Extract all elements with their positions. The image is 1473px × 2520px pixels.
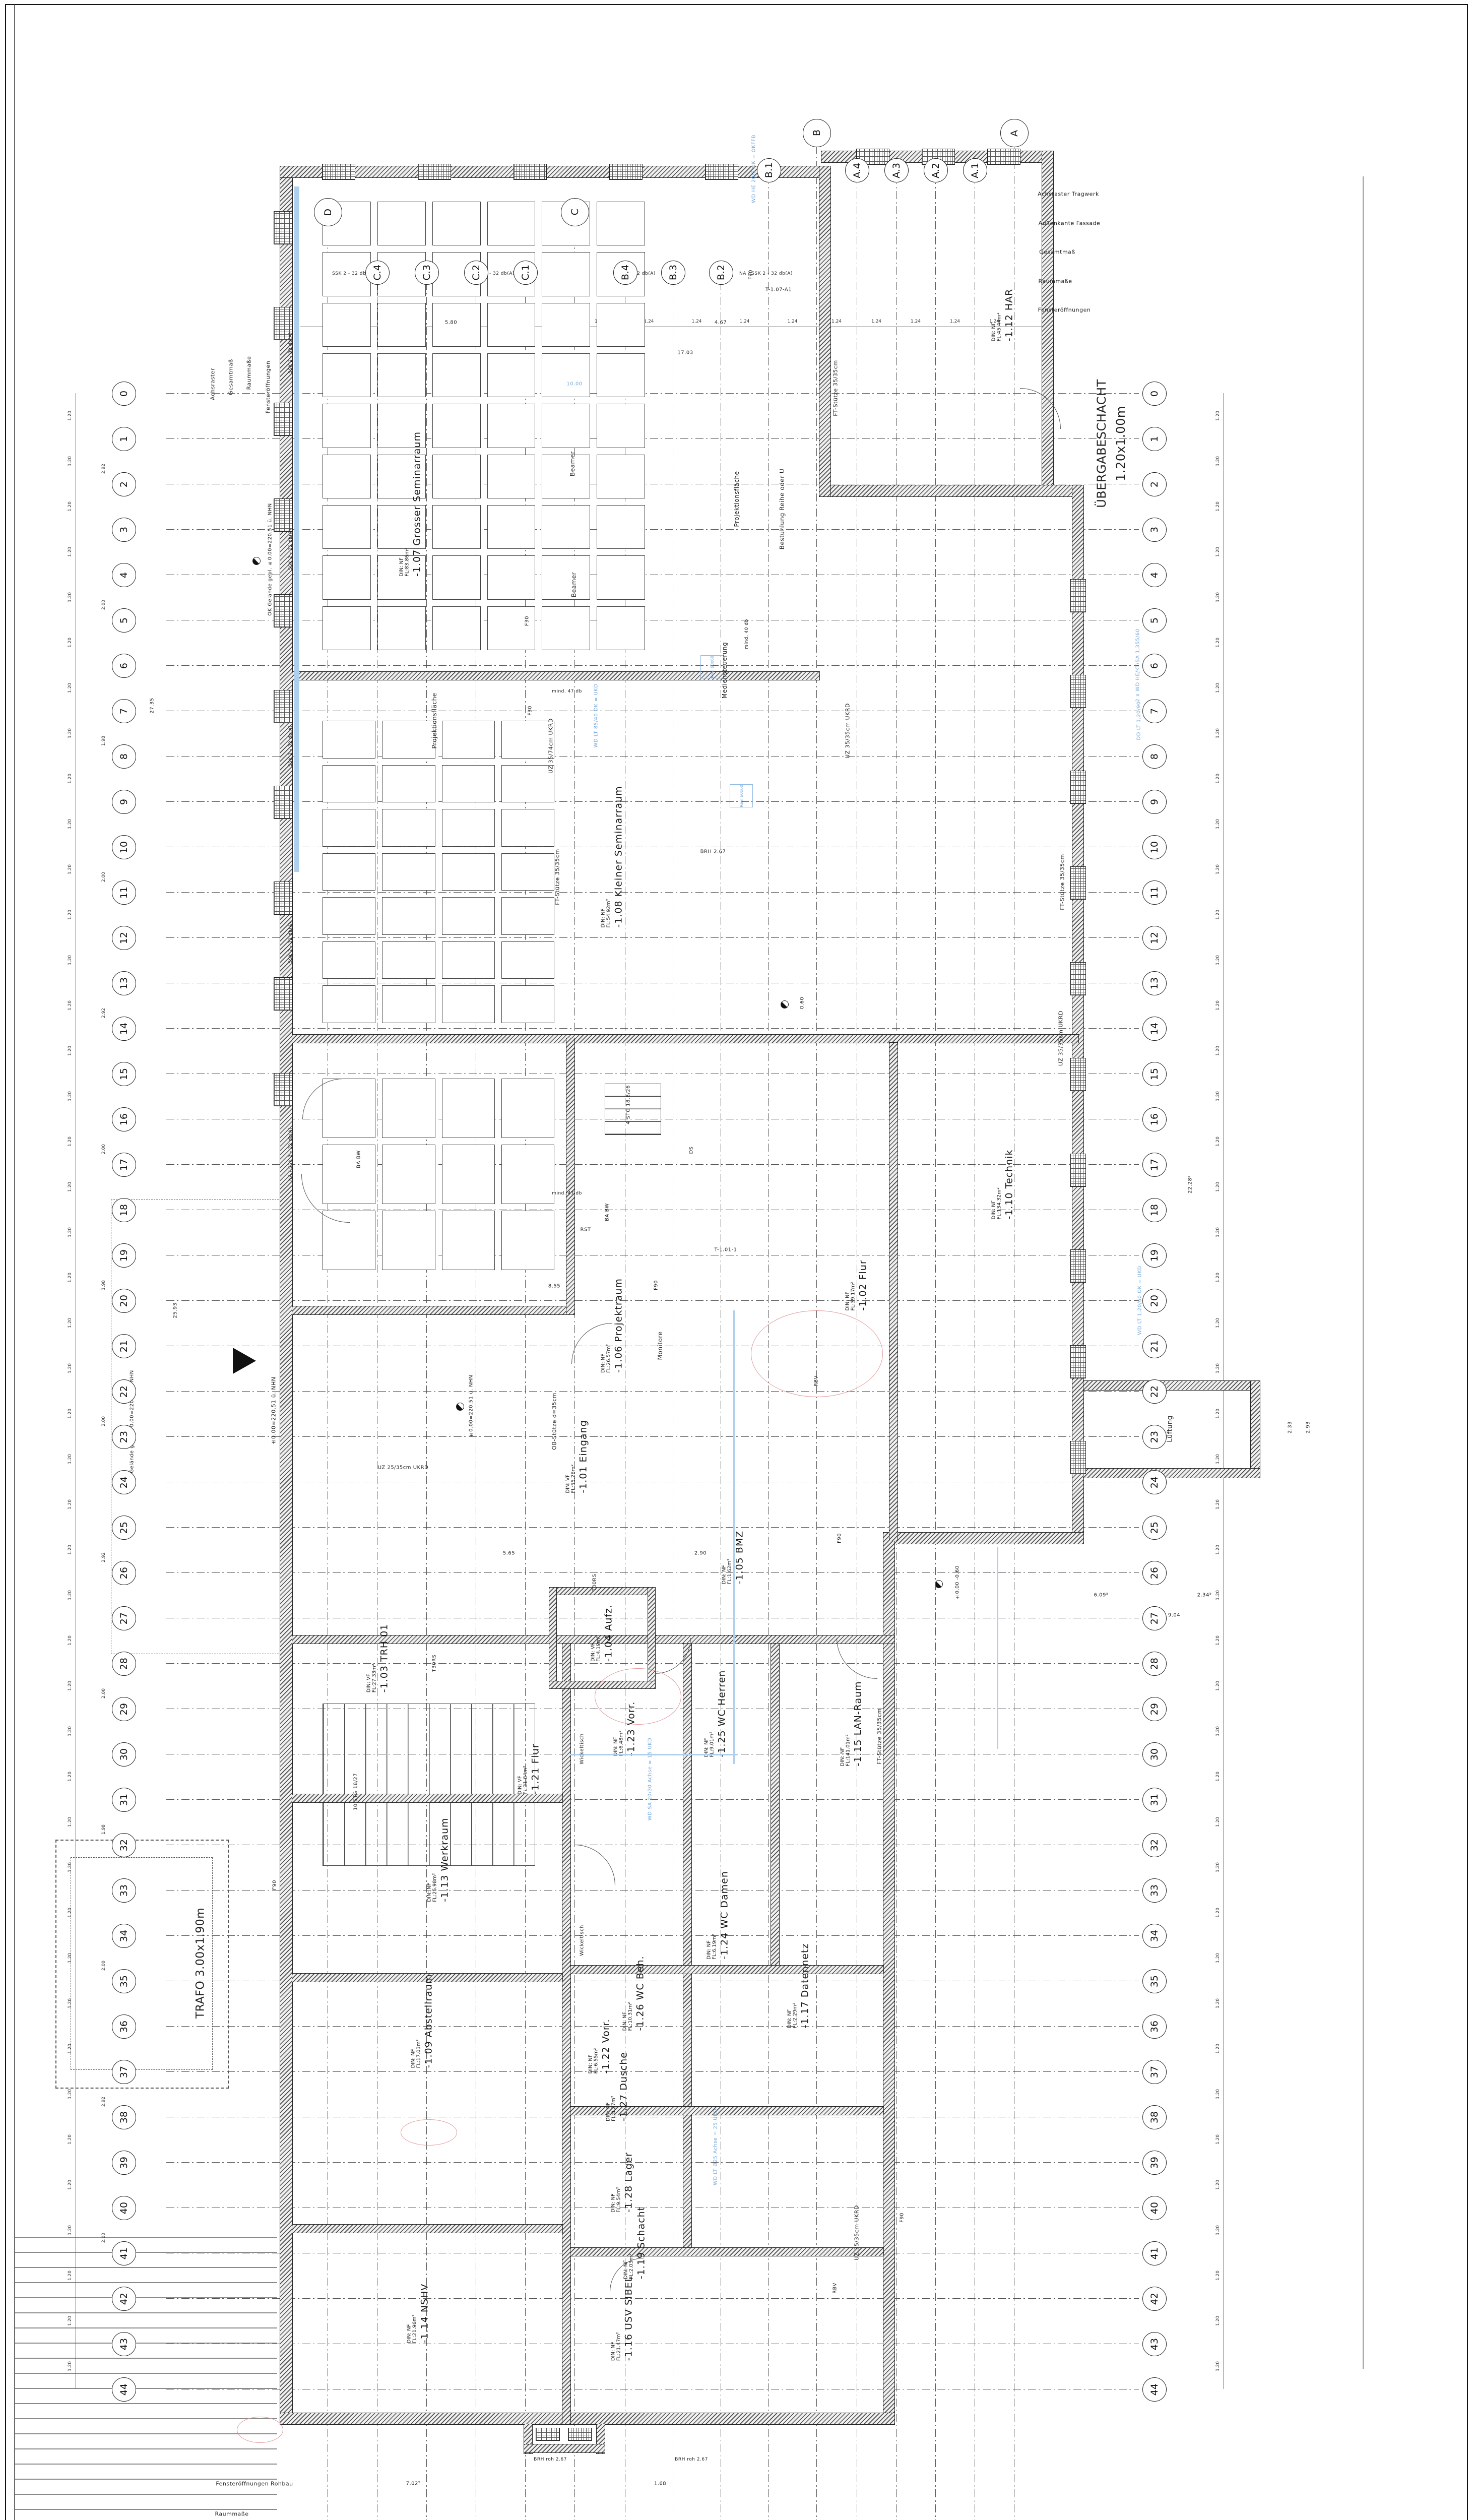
grid-bubble-number: 16: [112, 1107, 136, 1131]
grid-bubble-label: 37: [118, 2066, 130, 2078]
room-din: DIN: NF: [707, 1871, 712, 1960]
grid-line-h: [166, 2026, 1139, 2027]
table-cell: [501, 809, 554, 847]
grid-bubble-label: 11: [1149, 887, 1160, 899]
window-element: [1070, 1346, 1085, 1378]
grid-bubble-number: 10: [112, 835, 136, 859]
dim-value: 1.20: [1215, 1454, 1221, 1464]
dim-value: 1.20: [68, 592, 73, 602]
table-cell: [442, 1079, 495, 1138]
dim-value: 1.20: [68, 638, 73, 648]
door-swing-arc: [301, 1174, 350, 1223]
wall-segment: [570, 1966, 883, 1974]
grid-bubble-label: 17: [1149, 1159, 1160, 1171]
table-cell: [377, 606, 426, 650]
grid-bubble-label: 38: [1149, 2111, 1160, 2123]
table-cell: [323, 765, 375, 803]
table-cell: [597, 606, 645, 650]
annotation-text: Außenkante Fassade: [1039, 220, 1101, 227]
room-name: -1.06 Projektraum: [613, 1278, 624, 1373]
dim-chain-left: [76, 393, 76, 2389]
grid-bubble-label: 12: [1149, 932, 1160, 944]
grid-bubble-number: 32: [1142, 1833, 1167, 1857]
annotation-text: WD LT Ø25 Achse = 25 UKD: [713, 2109, 719, 2185]
grid-line-h: [166, 575, 1139, 575]
grid-bubble-number: 38: [112, 2105, 136, 2129]
site-boundary-line: [1363, 176, 1364, 2369]
dim-value: 1.20: [68, 910, 73, 920]
window-element: [274, 212, 292, 244]
room-name: -1.26 WC Beh.: [635, 1956, 646, 2031]
grid-bubble-label: 31: [1149, 1794, 1160, 1806]
table-cell: [442, 853, 495, 891]
grid-bubble-label: 14: [1149, 1023, 1160, 1035]
dim-value: 1.20: [68, 819, 73, 829]
grid-bubble-number: 15: [1142, 1062, 1167, 1086]
grid-bubble-number: 25: [112, 1516, 136, 1540]
room-area: FL:9.54m²: [616, 2152, 622, 2213]
grid-bubble-label: 8: [1149, 753, 1160, 760]
annotation-text: Fensteröffnungen: [1038, 307, 1091, 313]
window-element: [1070, 867, 1085, 899]
dim-value: 1.98: [101, 1824, 106, 1835]
grid-bubble-label: 15: [1149, 1068, 1160, 1080]
grid-bubble-number: 22: [112, 1379, 136, 1404]
grid-bubble-letter: B: [803, 119, 831, 147]
grid-bubble-number: 36: [112, 2014, 136, 2039]
table-cell: [442, 1211, 495, 1270]
grid-line-h: [166, 1255, 1139, 1255]
grid-bubble-label: 18: [1149, 1204, 1160, 1216]
grid-bubble-label: 31: [118, 1794, 130, 1806]
grid-bubble-number: 30: [112, 1742, 136, 1767]
grid-bubble-label: 9: [118, 799, 130, 805]
table-cell: [542, 353, 590, 397]
dim-value: 1.20: [1215, 910, 1221, 920]
annotation-text: Projektionsfläche: [733, 471, 740, 527]
window-element: [1070, 1154, 1085, 1186]
grid-bubble-label: 36: [118, 2021, 130, 2033]
annotation-text: OK Gelände gepl. ±0.00=220.51 ü. NHN: [268, 503, 273, 615]
grid-bubble-label: 10: [118, 841, 130, 853]
wall-segment: [1083, 1381, 1260, 1390]
grid-bubble-label: 1: [1149, 436, 1160, 442]
annotation-text: 27.35: [150, 698, 155, 713]
room-area: FL:134.32m²: [997, 1149, 1002, 1219]
window-element: [1070, 771, 1085, 803]
annotation-text: SSK 2 - 32 db(A): [288, 529, 293, 570]
grid-bubble-label: 34: [1149, 1930, 1160, 1942]
wall-segment: [524, 2444, 605, 2452]
grid-bubble-label: 20: [118, 1295, 130, 1307]
table-cell: [377, 202, 426, 245]
annotation-text: Monitore: [657, 1332, 664, 1360]
grid-bubble-number: 38: [1142, 2105, 1167, 2129]
room-din: DIN: NF: [622, 1956, 628, 2031]
room-din: DIN: NF: [991, 1149, 997, 1219]
annotation-text: 4.67: [715, 320, 727, 326]
dim-value: 1.20: [1215, 1000, 1221, 1011]
grid-bubble-label: B.1: [763, 162, 775, 178]
grid-bubble-label: 25: [118, 1522, 130, 1534]
grid-bubble-number: 21: [112, 1334, 136, 1358]
room-area: FL:54.92m²: [606, 786, 612, 927]
grid-bubble-label: 1: [118, 436, 130, 442]
window-element: [418, 164, 451, 179]
dim-value: 1.20: [1215, 2271, 1221, 2281]
level-marker: [456, 1403, 464, 1411]
entrance-paving-outline: [111, 1200, 281, 1654]
grid-bubble-label: 32: [1149, 1839, 1160, 1851]
table-cell: [542, 455, 590, 498]
dim-value: 1.20: [68, 456, 73, 466]
grid-line-h: [166, 1074, 1139, 1074]
room-name: -1.08 Kleiner Seminarraum: [613, 786, 624, 927]
annotation-text: Fensteröffnungen: [265, 361, 272, 414]
grid-bubble-label: 2: [118, 481, 130, 487]
dim-value: 1.20: [1215, 1137, 1221, 1147]
annotation-text: mind. 47 db: [552, 1191, 582, 1196]
table-cell: [323, 555, 371, 599]
grid-bubble-number: 5: [112, 608, 136, 633]
grid-line-h: [166, 1482, 1139, 1482]
table-cell: [542, 505, 590, 549]
dim-value: 1.20: [68, 1409, 73, 1419]
annotation-text: SSK 2 - 32 db(A): [288, 332, 293, 373]
level-marker: [935, 1580, 943, 1588]
annotation-text: WD LT 85/40 OK = UKD: [594, 684, 599, 748]
grid-line-h: [166, 937, 1139, 938]
annotation-text: BRH roh 2.67: [675, 2457, 708, 2462]
grid-bubble-number: 40: [1142, 2196, 1167, 2220]
dim-value: 1.20: [1215, 955, 1221, 965]
dim-value: 1.24: [871, 319, 881, 324]
window-element: [568, 2428, 592, 2440]
table-cell: [382, 765, 435, 803]
dim-value: 1.20: [1215, 2361, 1221, 2371]
table-cell: [382, 721, 435, 759]
annotation-text: F90: [837, 1533, 843, 1543]
grid-line-h: [166, 1436, 1139, 1437]
table-cell: [323, 809, 375, 847]
grid-bubble-number: 22: [1142, 1379, 1167, 1404]
annotation-text: FT-Stütze 35/35cm: [554, 849, 561, 905]
wall-segment: [1072, 485, 1083, 1544]
grid-line-v: [673, 285, 673, 2520]
room-din: DIN: NF: [407, 2284, 412, 2344]
room-label: DIN: NFFL:9.54m²-1.28 Lager: [611, 2152, 634, 2213]
grid-line-h: [166, 1572, 1139, 1573]
annotation-text: 17.03: [677, 350, 693, 356]
table-cell: [542, 606, 590, 650]
dim-value: 1.20: [68, 1000, 73, 1011]
annotation-text: WD HE 20/5 OK = OKFFB: [751, 135, 757, 203]
annotation-text: ±0.00=220.51 ü. NHN: [469, 1375, 474, 1438]
table-cell: [432, 555, 481, 599]
grid-bubble-letter: A.4: [845, 158, 869, 182]
dim-value: 1.20: [1215, 592, 1221, 602]
wall-segment: [280, 2413, 894, 2424]
grid-bubble-number: 14: [112, 1017, 136, 1041]
grid-bubble-label: 16: [1149, 1113, 1160, 1125]
table-cell: [323, 853, 375, 891]
grid-bubble-label: 11: [118, 887, 130, 899]
entrance-arrow: [233, 1348, 256, 1374]
grid-line-h: [166, 1935, 1139, 1936]
grid-line-h: [166, 393, 1139, 394]
table-cell: [501, 941, 554, 979]
room-label: DIN: NFFL:54.92m²-1.08 Kleiner Seminarra…: [601, 786, 624, 927]
room-din: DIN: NF: [399, 431, 405, 577]
grid-bubble-label: C.3: [421, 265, 432, 280]
grid-bubble-label: 9: [1149, 799, 1160, 805]
room-din: DIN: NF: [991, 289, 997, 342]
table-cell: [323, 721, 375, 759]
room-label: DIN: NFFL:141.01m²-1.15 LAN-Raum: [840, 1681, 864, 1766]
grid-line-h: [166, 1346, 1139, 1346]
room-label: DIN: NFFL:9.01m²-1.25 WC Herren: [704, 1670, 728, 1757]
annotation-text: FT-Stütze 35/35cm: [876, 1708, 883, 1764]
room-din: DIN: NF: [606, 2052, 611, 2121]
wall-segment: [292, 2225, 562, 2233]
annotation-text: T30RS: [432, 1655, 437, 1672]
dim-value: 1.20: [68, 864, 73, 874]
annotation-text: RBV: [814, 1375, 819, 1387]
grid-bubble-number: 32: [112, 1833, 136, 1857]
grid-bubble-label: 26: [118, 1567, 130, 1579]
grid-bubble-label: 13: [1149, 977, 1160, 989]
window-element: [706, 164, 738, 179]
dim-value: 1.20: [68, 1137, 73, 1147]
grid-line-h: [166, 665, 1139, 666]
grid-bubble-label: 23: [1149, 1431, 1160, 1443]
grid-bubble-label: 14: [118, 1023, 130, 1035]
grid-line-h: [166, 2389, 1139, 2389]
furniture-table-grid: [323, 1079, 554, 1270]
grid-bubble-number: 15: [112, 1062, 136, 1086]
table-cell: [382, 809, 435, 847]
furniture-table-grid: [323, 721, 554, 1023]
dim-value: 1.20: [1215, 864, 1221, 874]
dim-value: 1.20: [1215, 1363, 1221, 1373]
grid-bubble-number: 9: [112, 790, 136, 814]
grid-bubble-label: 17: [118, 1159, 130, 1171]
room-name: -1.27 Dusche: [618, 2052, 629, 2121]
dim-value: 1.20: [68, 1499, 73, 1509]
grid-bubble-label: 3: [1149, 527, 1160, 533]
grid-line-h: [166, 2162, 1139, 2163]
grid-bubble-label: 33: [1149, 1884, 1160, 1897]
dim-value: 1.20: [1215, 2089, 1221, 2099]
revision-opening-label: Revi 60x60: [739, 785, 744, 807]
room-name: -1.07 Grosser Seminarraum: [412, 431, 423, 577]
dim-value: 1.24: [831, 319, 842, 324]
grid-bubble-number: 11: [1142, 880, 1167, 905]
grid-bubble-number: 5: [1142, 608, 1167, 633]
dim-value: 1.98: [101, 736, 106, 746]
dim-value: 1.20: [68, 1908, 73, 1918]
room-din: DIN: VF: [591, 1604, 596, 1662]
door-swing-arc: [302, 1079, 343, 1119]
grid-line-h: [166, 801, 1139, 802]
grid-bubble-label: 35: [1149, 1975, 1160, 1987]
grid-bubble-label: 42: [1149, 2293, 1160, 2305]
wall-segment: [889, 1043, 898, 1541]
annotation-text: 2.34⁵: [1197, 1593, 1212, 1598]
annotation-text: -0.60: [800, 997, 805, 1011]
annotation-text: T-1.01-1: [714, 1247, 737, 1253]
dim-value: 1.20: [68, 501, 73, 512]
room-name: -1.13 Werkraum: [439, 1817, 451, 1902]
room-name: -1.04 Aufz.: [603, 1604, 614, 1662]
grid-bubble-label: 39: [1149, 2157, 1160, 2169]
annotation-text: Mediensteuerung: [721, 642, 728, 699]
grid-line-h: [166, 983, 1139, 983]
grid-bubble-label: 25: [1149, 1522, 1160, 1534]
grid-bubble-number: 1: [1142, 427, 1167, 451]
grid-bubble-label: 7: [118, 708, 130, 714]
table-cell: [487, 555, 536, 599]
annotation-text: BRH roh 2.67: [534, 2457, 567, 2462]
dim-value: 1.20: [68, 1182, 73, 1192]
room-din: DIN: VF: [366, 1624, 372, 1693]
annotation-text: Lüftung: [1167, 1416, 1174, 1442]
room-din: DIN: NF: [704, 1670, 710, 1757]
annotation-text: ±0.00=220.51 ü. NHN: [271, 1377, 277, 1446]
grid-bubble-label: 41: [118, 2247, 130, 2259]
dim-value: 1.20: [68, 774, 73, 784]
grid-bubble-label: 22: [1149, 1385, 1160, 1398]
dim-value: 1.20: [1215, 683, 1221, 693]
table-cell: [382, 1079, 435, 1138]
table-cell: [323, 353, 371, 397]
annotation-text: UZ 35/35cm UKRD: [845, 703, 851, 759]
door-swing-arc: [571, 1323, 612, 1364]
window-element: [274, 786, 292, 818]
grid-bubble-label: 30: [118, 1748, 130, 1760]
grid-bubble-number: 40: [112, 2196, 136, 2220]
grid-bubble-number: 1: [112, 427, 136, 451]
dim-value: 1.20: [1215, 1273, 1221, 1283]
grid-bubble-number: 18: [1142, 1198, 1167, 1222]
room-label: DIN: NFFL:39.17m²-1.02 Flur: [845, 1259, 869, 1310]
grid-bubble-label: 26: [1149, 1567, 1160, 1579]
annotation-text: 5.65: [503, 1551, 515, 1556]
table-cell: [487, 606, 536, 650]
wall-segment: [819, 166, 830, 496]
annotation-text: T-1.07-A1: [765, 287, 792, 293]
grid-bubble-label: A.1: [970, 163, 981, 178]
annotation-text: BRH 2.67: [700, 849, 726, 855]
grid-bubble-label: 43: [118, 2338, 130, 2350]
grid-bubble-label: 16: [118, 1113, 130, 1125]
table-cell: [442, 985, 495, 1023]
room-name: -1.15 LAN-Raum: [853, 1681, 864, 1766]
grid-bubble-letter: B.4: [613, 261, 637, 285]
annotation-text: NA / SSK 2 - 32 db(A): [739, 271, 793, 276]
grid-bubble-number: 23: [112, 1425, 136, 1449]
annotation-text: 1.20x1.00m: [1114, 406, 1128, 481]
dim-value: 1.20: [1215, 1499, 1221, 1509]
room-area: FL:21.96m²: [412, 2284, 418, 2344]
room-label: DIN: VFFL:55.26m²-1.01 Eingang: [565, 1420, 589, 1493]
room-area: FL:83.86m²: [405, 431, 410, 577]
grid-bubble-number: 12: [112, 926, 136, 950]
dim-value: 1.20: [1215, 2316, 1221, 2326]
grid-bubble-label: 6: [1149, 663, 1160, 669]
room-area: FL:4.19m²: [596, 1604, 602, 1662]
wall-segment: [771, 1644, 779, 1971]
table-cell: [542, 303, 590, 347]
annotation-text: FT-Stütze 35/35cm: [1059, 854, 1066, 910]
table-cell: [501, 985, 554, 1023]
annotation-text: 1.68: [654, 2481, 666, 2487]
dim-value: 1.20: [68, 2089, 73, 2099]
annotation-text: FT-Stütze 35/35cm: [832, 360, 839, 416]
dim-value: 2.92: [101, 1008, 106, 1018]
room-label: DIN: VFFL:31.84m²-1.21 Flur: [518, 1743, 541, 1794]
dim-value: 2.00: [101, 600, 106, 610]
room-area: FL:8.27m²: [611, 2052, 617, 2121]
grid-bubble-number: 42: [112, 2287, 136, 2311]
grid-bubble-number: 8: [1142, 744, 1167, 769]
grid-line-h: [166, 711, 1139, 711]
grid-bubble-number: 28: [1142, 1652, 1167, 1676]
grid-bubble-label: C: [569, 209, 581, 215]
grid-bubble-number: 20: [112, 1289, 136, 1313]
table-cell: [597, 455, 645, 498]
room-area: FL:6.55m²: [594, 2019, 599, 2074]
dim-value: 1.20: [1215, 2044, 1221, 2054]
room-label: DIN: NFFL:21.96m²-1.14 NSHV: [407, 2284, 430, 2344]
window-element: [1070, 580, 1085, 612]
dim-value: 1.20: [1215, 2134, 1221, 2145]
window-element: [274, 882, 292, 914]
dim-value: 1.20: [68, 1817, 73, 1827]
wall-segment: [549, 1588, 655, 1595]
grid-bubble-label: 13: [118, 977, 130, 989]
annotation-text: F30: [528, 706, 533, 716]
grid-bubble-number: 43: [1142, 2332, 1167, 2356]
dim-value: 1.20: [68, 1046, 73, 1056]
trafo-inner-outline: [71, 1857, 213, 2070]
annotation-text: UZ 25/35cm UKRD: [378, 1465, 428, 1471]
annotation-text: Raummaße: [1039, 278, 1072, 285]
hvac-highlight-line: [570, 1754, 737, 1755]
grid-bubble-label: 22: [118, 1385, 130, 1398]
dim-value: 1.20: [68, 1318, 73, 1328]
table-cell: [597, 404, 645, 448]
grid-bubble-number: 7: [1142, 699, 1167, 723]
table-cell: [501, 765, 554, 803]
grid-bubble-label: 36: [1149, 2021, 1160, 2033]
table-cell: [442, 721, 495, 759]
grid-line-h: [166, 484, 1139, 484]
grid-bubble-label: 39: [118, 2157, 130, 2169]
grid-bubble-number: 13: [112, 971, 136, 995]
hvac-highlight-line: [997, 1547, 998, 1749]
grid-bubble-number: 27: [112, 1606, 136, 1630]
dim-value: 1.20: [68, 2271, 73, 2281]
dim-value: 1.20: [68, 411, 73, 421]
grid-bubble-number: 33: [112, 1878, 136, 1903]
wall-segment: [1251, 1381, 1260, 1478]
table-cell: [501, 897, 554, 935]
grid-bubble-number: 31: [1142, 1788, 1167, 1812]
grid-bubble-label: 5: [1149, 617, 1160, 623]
grid-line-h: [166, 1028, 1139, 1029]
dim-value: 1.20: [1215, 774, 1221, 784]
